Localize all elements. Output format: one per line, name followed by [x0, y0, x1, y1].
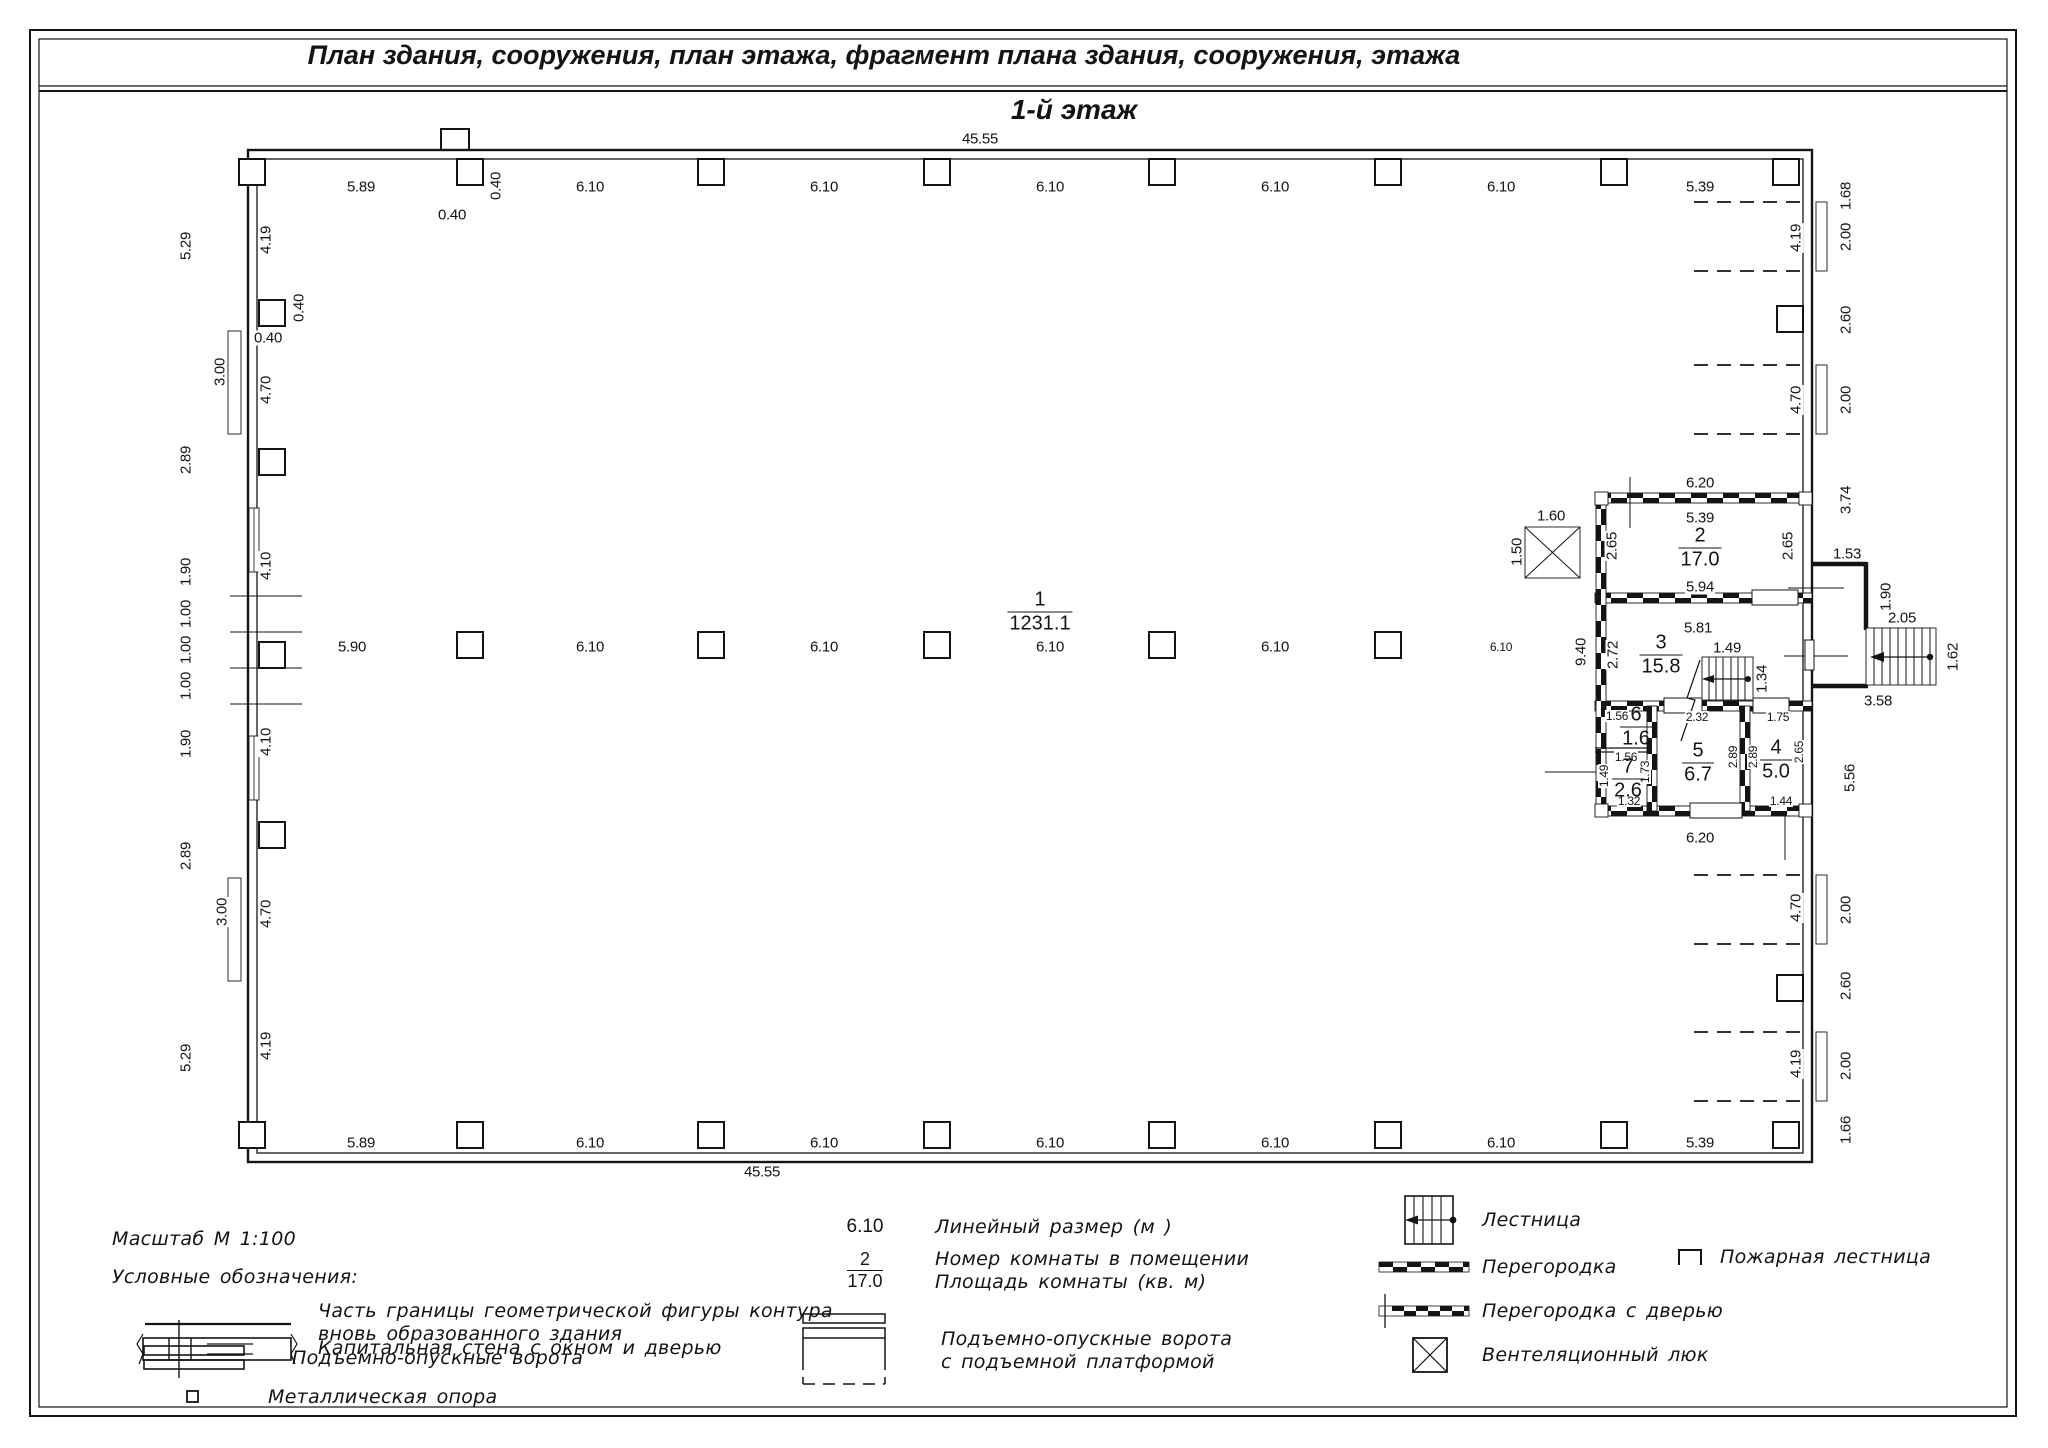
- metal-support: [456, 631, 484, 659]
- metal-support: [697, 158, 725, 186]
- dim-label: 1.00: [179, 635, 194, 665]
- dim-label: 1.49: [1598, 764, 1610, 788]
- dim-label: 0.40: [437, 208, 467, 223]
- dim-label: 3.00: [215, 897, 230, 927]
- metal-support: [1776, 974, 1804, 1002]
- drawing-sheet: { "header": { "title": "План здания, соо…: [0, 0, 2048, 1448]
- dim-label: 1.60: [1536, 509, 1566, 524]
- dim-label: 0.40: [253, 331, 283, 346]
- room-area: 17.0: [1679, 549, 1722, 572]
- dim-label: 4.19: [259, 225, 274, 255]
- metal-support: [1148, 1121, 1176, 1149]
- dim-label: 1.90: [179, 729, 194, 759]
- dim-label: 2.00: [1839, 1051, 1854, 1081]
- dim-label: 6.10: [1035, 1136, 1065, 1151]
- dim-label: 2.89: [1727, 745, 1739, 769]
- metal-support: [1600, 1121, 1628, 1149]
- stairs-icon: [1378, 1194, 1482, 1246]
- metal-support: [1374, 631, 1402, 659]
- dim-label: 2.60: [1839, 971, 1854, 1001]
- dim-label: 1.44: [1769, 795, 1793, 807]
- metal-support: [1776, 305, 1804, 333]
- metal-support: [258, 299, 286, 327]
- dim-label: 6.10: [809, 180, 839, 195]
- room-fraction-symbol: 2 17.0: [795, 1249, 935, 1292]
- platform-gate-icon: [795, 1312, 941, 1390]
- room-number: 4: [1760, 737, 1792, 761]
- dim-label: 6.20: [1685, 831, 1715, 846]
- dim-label: 45.55: [961, 132, 999, 147]
- dim-label: 1.66: [1839, 1115, 1854, 1145]
- metal-support-icon: [118, 1389, 268, 1405]
- dim-label: 5.89: [346, 1136, 376, 1151]
- dim-label: 3.00: [213, 357, 228, 387]
- legend-row-partition: Перегородка: [1378, 1256, 1617, 1279]
- legend-row-partition-door: Перегородка с дверью: [1378, 1294, 1723, 1328]
- dim-label: 2.89: [179, 841, 194, 871]
- fire-escape-icon: [1660, 1247, 1720, 1267]
- dim-label: 6.10: [1260, 1136, 1290, 1151]
- dim-label: 2.00: [1839, 222, 1854, 252]
- room-label-6: 61.6: [1620, 704, 1652, 751]
- linear-dim-symbol: 6.10: [795, 1216, 935, 1238]
- dim-label: 5.39: [1685, 180, 1715, 195]
- dim-label: 5.81: [1683, 621, 1713, 636]
- dim-label: 5.39: [1685, 1136, 1715, 1151]
- dim-label: 1.68: [1839, 181, 1854, 211]
- dim-label: 2.65: [1793, 740, 1805, 764]
- dim-label: 6.10: [809, 1136, 839, 1151]
- dim-label: 1.90: [179, 557, 194, 587]
- dim-label: 2.05: [1887, 611, 1917, 626]
- dim-label: 4.10: [259, 727, 274, 757]
- room-area-example: 17.0: [847, 1271, 882, 1291]
- dim-label: 4.70: [1789, 893, 1804, 923]
- dim-label: 4.19: [259, 1031, 274, 1061]
- legend-label: Вентеляционный люк: [1482, 1344, 1709, 1367]
- legend-row-support: Металлическая опора: [118, 1362, 818, 1409]
- metal-support: [238, 1121, 266, 1149]
- dim-label: 2.00: [1839, 385, 1854, 415]
- dim-label: 2.72: [1606, 640, 1621, 670]
- metal-support: [456, 158, 484, 186]
- dim-label: 5.39: [1685, 511, 1715, 526]
- dim-example: 6.10: [847, 1216, 884, 1238]
- metal-support: [923, 631, 951, 659]
- dim-label: 6.10: [575, 640, 605, 655]
- metal-support: [923, 158, 951, 186]
- legend-label: Лестница: [1482, 1209, 1581, 1232]
- room-number: 5: [1682, 740, 1714, 764]
- dim-label: 6.10: [575, 1136, 605, 1151]
- room-number-example: 2: [847, 1249, 882, 1271]
- legend-label: с подъемной платформой: [941, 1351, 1232, 1374]
- metal-support: [258, 448, 286, 476]
- partition-icon: [1378, 1261, 1482, 1273]
- room-label-4: 45.0: [1760, 737, 1792, 784]
- legend-label: Номер комнаты в помещении: [935, 1248, 1249, 1271]
- metal-support: [238, 158, 266, 186]
- metal-support: [697, 631, 725, 659]
- room-label-7: 72.6: [1612, 756, 1644, 803]
- dim-label: 5.89: [346, 180, 376, 195]
- dim-label: 0.40: [489, 171, 504, 201]
- legend-row-platform-gates: Подъемно-опускные ворота с подъемной пла…: [795, 1312, 1232, 1390]
- dim-label: 0.40: [292, 293, 307, 323]
- dim-label: 2.32: [1685, 711, 1709, 723]
- dim-label: 2.60: [1839, 305, 1854, 335]
- dim-label: 1.50: [1510, 537, 1525, 567]
- dim-label: 1.62: [1946, 642, 1961, 672]
- dim-label: 6.10: [1489, 641, 1513, 653]
- legend-row-fire-escape: Пожарная лестница: [1660, 1246, 1931, 1269]
- metal-support: [1772, 158, 1800, 186]
- room-number: 7: [1612, 756, 1644, 780]
- dim-label: 4.10: [259, 551, 274, 581]
- dim-label: 1.53: [1832, 547, 1862, 562]
- legend-label: Перегородка с дверью: [1482, 1300, 1723, 1323]
- dim-label: 2.65: [1605, 531, 1620, 561]
- dim-label: 4.70: [259, 375, 274, 405]
- partition-door-icon: [1378, 1294, 1482, 1328]
- dim-label: 2.00: [1839, 895, 1854, 925]
- room-area: 6.7: [1682, 764, 1714, 787]
- dim-label: 6.10: [1260, 180, 1290, 195]
- dim-label: 6.10: [809, 640, 839, 655]
- dim-label: 2.89: [179, 445, 194, 475]
- room-number: 3: [1640, 632, 1683, 656]
- room-label-3: 315.8: [1640, 632, 1683, 679]
- room-label-2: 217.0: [1679, 525, 1722, 572]
- dim-label: 2.65: [1781, 531, 1796, 561]
- dim-label: 1.00: [179, 671, 194, 701]
- dim-label: 5.56: [1843, 763, 1858, 793]
- metal-support: [258, 821, 286, 849]
- dim-label: 1.00: [179, 599, 194, 629]
- dim-label: 4.70: [1789, 385, 1804, 415]
- room-label-1: 11231.1: [1007, 589, 1072, 636]
- dim-label: 5.94: [1685, 580, 1715, 595]
- dim-label: 6.10: [1486, 1136, 1516, 1151]
- dim-label: 1.34: [1755, 664, 1770, 694]
- room-number: 6: [1620, 704, 1652, 728]
- dim-label: 3.74: [1839, 485, 1854, 515]
- legend-row-stairs: Лестница: [1378, 1194, 1581, 1246]
- dim-label: 9.40: [1574, 637, 1589, 667]
- metal-support: [1374, 1121, 1402, 1149]
- room-area: 15.8: [1640, 656, 1683, 679]
- legend-label: Линейный размер (м ): [935, 1216, 1172, 1239]
- legend-label: Пожарная лестница: [1720, 1246, 1931, 1269]
- metal-support: [1600, 158, 1628, 186]
- dim-label: 4.19: [1789, 223, 1804, 253]
- legend-row-vent: Вентеляционный люк: [1378, 1336, 1709, 1374]
- legend-label: Подъемно-опускные ворота: [941, 1328, 1232, 1351]
- dim-label: 2.89: [1747, 745, 1759, 769]
- vent-hatch-icon: [1378, 1336, 1482, 1374]
- metal-support: [923, 1121, 951, 1149]
- dim-label: 6.10: [1260, 640, 1290, 655]
- metal-support: [456, 1121, 484, 1149]
- metal-support: [1374, 158, 1402, 186]
- dim-label: 4.19: [1789, 1049, 1804, 1079]
- dim-label: 6.10: [1035, 640, 1065, 655]
- dim-label: 4.70: [259, 899, 274, 929]
- dim-label: 6.10: [575, 180, 605, 195]
- room-area: 1.6: [1620, 728, 1652, 751]
- legend-row-room-number: 2 17.0 Номер комнаты в помещении Площадь…: [795, 1248, 1249, 1294]
- room-label-5: 56.7: [1682, 740, 1714, 787]
- dim-label: 1.90: [1879, 582, 1894, 612]
- room-area: 5.0: [1760, 761, 1792, 784]
- legend-label: Перегородка: [1482, 1256, 1617, 1279]
- legend-row-linear-dim: 6.10 Линейный размер (м ): [795, 1216, 1172, 1239]
- metal-support: [1772, 1121, 1800, 1149]
- room-area: 1231.1: [1007, 613, 1072, 636]
- dim-label: 5.29: [179, 1043, 194, 1073]
- dim-label: 5.29: [179, 231, 194, 261]
- dim-label: 6.20: [1685, 476, 1715, 491]
- metal-support: [1148, 631, 1176, 659]
- room-area: 2.6: [1612, 780, 1644, 803]
- dim-label: 45.55: [743, 1165, 781, 1180]
- dim-label: 3.58: [1863, 694, 1893, 709]
- metal-support: [697, 1121, 725, 1149]
- dim-label: 1.75: [1766, 711, 1790, 723]
- metal-support: [1148, 158, 1176, 186]
- legend-label: Площадь комнаты (кв. м): [935, 1271, 1249, 1294]
- dim-label: 6.10: [1486, 180, 1516, 195]
- dim-label: 5.90: [337, 640, 367, 655]
- legend-label: Металлическая опора: [268, 1386, 497, 1409]
- dim-label: 1.49: [1712, 641, 1742, 656]
- room-number: 2: [1679, 525, 1722, 549]
- room-number: 1: [1007, 589, 1072, 613]
- dim-label: 6.10: [1035, 180, 1065, 195]
- metal-support: [258, 641, 286, 669]
